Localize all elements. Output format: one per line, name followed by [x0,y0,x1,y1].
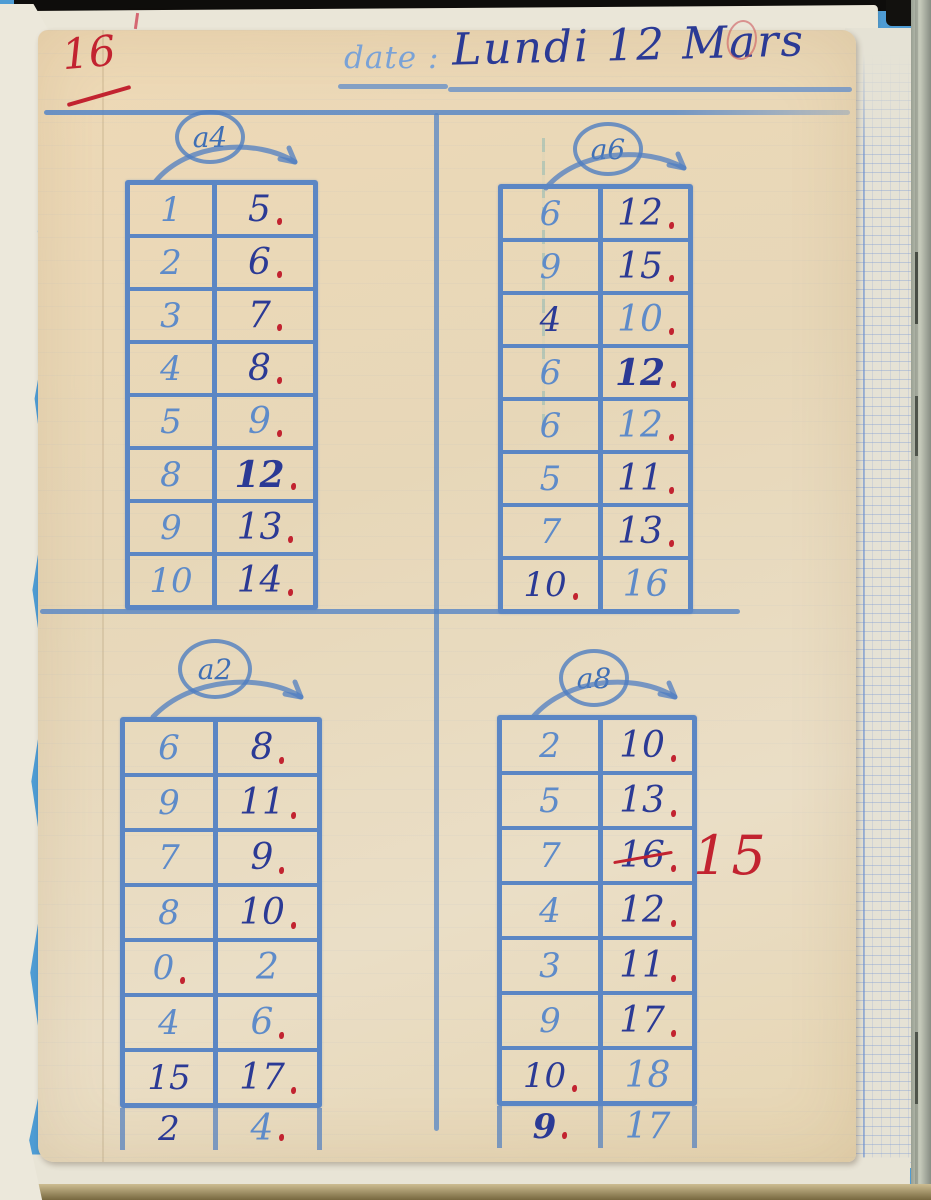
handwritten-number: 11 [619,948,665,984]
table-cell: 13 [217,503,313,552]
grading-dot [671,975,676,982]
table-row: 79 [125,828,317,883]
teacher-correction: 15 [693,824,770,887]
handwritten-number: 12 [234,457,284,493]
table-cell: 6 [218,997,317,1048]
handwritten-number: 6 [540,409,562,443]
table-cell: 6 [503,401,603,450]
handwritten-number: 11 [617,461,663,497]
table-cell: 5 [130,397,217,446]
handwritten-number: 5 [160,405,182,439]
grading-dot [277,218,282,225]
table-cell: 8 [218,722,317,773]
table-cell: 6 [503,348,603,397]
grading-dot [291,483,296,490]
table-cell: 8 [217,344,313,393]
table-cell: 7 [125,832,218,883]
table-row: 612 [503,344,688,397]
handwritten-number: 2 [160,246,182,280]
handwritten-number: 5 [540,462,562,496]
handwritten-number: 10 [617,302,663,338]
notebook-cover-edge [36,1184,931,1200]
grading-dot [671,755,676,762]
table-plus2: 689117981002461517 24 [120,717,322,1150]
handwritten-number: 10 [523,1059,566,1093]
table-cell: 10 [503,560,603,609]
handwritten-number: 17 [625,1109,671,1145]
table-cell: 4 [218,1108,317,1150]
handwritten-number: 7 [540,515,562,549]
table-cell: 2 [218,942,317,993]
table-cell: 12 [603,885,692,936]
table-row: 915 [503,238,688,291]
handwritten-number: 9 [251,840,274,876]
table-row: 911 [125,773,317,828]
table-cell: 4 [130,344,217,393]
table-row: 24 [120,1108,322,1150]
handwritten-number: 10 [523,568,566,602]
divider-vertical-center [434,113,439,1131]
handwritten-number: 17 [239,1060,285,1096]
handwritten-number: 16 [619,838,665,874]
table-cell: 12 [603,348,688,397]
table-row: 68 [125,722,317,773]
handwritten-number: 12 [617,196,663,232]
table-cell: 15 [125,1052,218,1103]
table-cell: 6 [503,189,603,238]
grading-dot [277,324,282,331]
table-row: 713 [503,503,688,556]
handwritten-number: 6 [540,356,562,390]
table-cell: 12 [603,401,688,450]
grading-dot [279,757,284,764]
handwritten-number: 12 [617,408,663,444]
handwritten-number: 7 [248,298,271,334]
handwritten-number: 4 [539,894,561,928]
table-row: 37 [130,287,313,340]
mapping-arrow-icon [525,671,690,721]
table-frame: 6129154106126125117131016 [498,184,693,614]
handwritten-number: 12 [619,893,665,929]
table-cell: 16 [603,830,692,881]
table-row: 812 [130,446,313,499]
grading-dot [277,271,282,278]
table-cell: 18 [603,1050,692,1101]
grading-dot [671,865,676,872]
table-cell: 9 [218,832,317,883]
table-row: 1517 [125,1048,317,1103]
handwritten-number: 5 [539,784,561,818]
table-cell: 17 [603,1106,692,1148]
grading-dot [671,381,676,388]
handwritten-number: 18 [625,1058,671,1094]
handwritten-number: 4 [160,352,182,386]
handwritten-number: 4 [251,1111,274,1147]
handwritten-number: 1 [160,193,182,227]
table-cell: 2 [502,720,603,771]
table-cell: 10 [218,887,317,938]
grading-dot [279,1032,284,1039]
handwritten-number: 12 [615,355,665,391]
table-frame: 2105137164123119171018 [497,715,697,1106]
table-row: 26 [130,234,313,287]
table-cell: 12 [603,189,688,238]
table-row: 716 [502,826,692,881]
table-row: 917 [502,991,692,1046]
grading-dot [669,222,674,229]
handwritten-number: 13 [619,783,665,819]
grading-dot [669,328,674,335]
table-cell: 8 [130,450,217,499]
table-cell: 2 [125,1108,218,1150]
table-row: 1018 [502,1046,692,1101]
table-cell: 17 [603,995,692,1046]
table-cell: 4 [503,295,603,344]
exercise-block-plus2: a2 689117981002461517 24 [120,717,322,1150]
handwritten-number: 9 [539,1004,561,1038]
table-cell: 5 [217,185,313,234]
handwritten-number: 3 [539,949,561,983]
handwritten-number: 5 [248,192,271,228]
handwritten-number: 3 [160,299,182,333]
table-row: 1016 [503,556,688,609]
table-plus6: 6129154106126125117131016 [498,184,693,614]
table-cell: 10 [603,720,692,771]
table-row: 810 [125,883,317,938]
table-plus4: 15263748598129131014 [125,180,318,610]
grading-dot [291,922,296,929]
exercise-block-plus4: a4 15263748598129131014 [125,180,318,610]
handwritten-number: 8 [251,730,274,766]
handwritten-number: 16 [623,567,669,603]
table-cell: 9 [502,1106,603,1148]
grading-dot [572,1085,577,1092]
handwritten-number: 8 [160,458,182,492]
table-row: 513 [502,771,692,826]
table-cell: 16 [603,560,688,609]
handwritten-number: 2 [158,1112,180,1146]
table-row: 1014 [130,552,313,605]
date-underline [448,87,852,92]
table-cell: 11 [603,940,692,991]
grading-dot [671,810,676,817]
grading-dot [288,589,293,596]
table-cell: 7 [217,291,313,340]
table-frame: 689117981002461517 [120,717,322,1108]
table-cell: 7 [503,507,603,556]
grading-dot [669,434,674,441]
handwritten-number: 9 [158,786,180,820]
handwritten-number: 17 [619,1003,665,1039]
grading-dot [279,1134,284,1141]
handwritten-number: 13 [617,514,663,550]
table-cell: 3 [502,940,603,991]
grading-dot [291,812,296,819]
table-cell: 11 [603,454,688,503]
grading-dot [291,1087,296,1094]
handwritten-number: 6 [248,245,271,281]
handwritten-number: 9 [533,1110,557,1144]
table-row: 917 [497,1106,697,1148]
table-row: 311 [502,936,692,991]
grading-dot [180,977,185,984]
handwritten-number: 6 [251,1005,274,1041]
table-cell: 9 [217,397,313,446]
table-row: 913 [130,499,313,552]
table-row: 412 [502,881,692,936]
table-cell: 11 [218,777,317,828]
table-row: 612 [503,397,688,450]
handwritten-number: 8 [248,351,271,387]
exercise-block-plus6: a6 6129154106126125117131016 [498,184,693,614]
handwritten-number: 14 [237,563,283,599]
page-number: 16 [60,26,118,79]
table-row: 511 [503,450,688,503]
mapping-arrow-icon [145,669,315,721]
handwritten-number: 2 [256,950,279,986]
grading-dot [573,593,578,600]
table-cell: 17 [218,1052,317,1103]
table-plus8: 2105137164123119171018 917 [497,715,697,1148]
table-cell: 6 [125,722,218,773]
table-cell: 8 [125,887,218,938]
table-row: 210 [502,720,692,771]
notebook-binding-edge [911,0,931,1200]
table-cell: 14 [217,556,313,605]
table-cell: 9 [125,777,218,828]
table-row: 02 [125,938,317,993]
handwritten-number: 15 [147,1061,190,1095]
grading-dot [279,867,284,874]
table-cell: 12 [217,450,313,499]
handwritten-number: 9 [540,250,562,284]
handwritten-number: 4 [540,303,562,337]
table-cell: 13 [603,775,692,826]
handwritten-number: 9 [248,404,271,440]
grading-dot [669,540,674,547]
table-cell: 3 [130,291,217,340]
grading-dot [277,377,282,384]
handwritten-number: 13 [237,510,283,546]
grading-dot [671,920,676,927]
grading-dot [669,487,674,494]
table-cell: 4 [502,885,603,936]
handwritten-number: 10 [619,728,665,764]
grading-dot [669,275,674,282]
table-cell: 10 [130,556,217,605]
table-cell: 9 [503,242,603,291]
table-row: 410 [503,291,688,344]
divider-horizontal-top [44,110,850,115]
table-cell: 9 [130,503,217,552]
table-cell: 10 [603,295,688,344]
scanned-notebook-page: 16 date : Lundi 12 Mars a4 1526374859812… [0,0,931,1200]
table-row: 15 [130,185,313,234]
handwritten-number: 2 [539,729,561,763]
mapping-arrow-icon [147,136,307,186]
table-cell: 6 [217,238,313,287]
table-cell: 5 [502,775,603,826]
handwritten-number: 8 [158,896,180,930]
table-cell: 15 [603,242,688,291]
table-cell: 13 [603,507,688,556]
table-row: 48 [130,340,313,393]
grading-dot [562,1132,567,1139]
table-cell: 5 [503,454,603,503]
table-frame: 15263748598129131014 [125,180,318,610]
handwritten-number: 9 [160,511,182,545]
handwritten-number: 4 [158,1006,180,1040]
table-cell: 0 [125,942,218,993]
table-cell: 9 [502,995,603,1046]
handwritten-number: 15 [617,249,663,285]
handwritten-number: 10 [239,895,285,931]
table-row: 59 [130,393,313,446]
table-row: 46 [125,993,317,1048]
handwritten-number: 7 [158,841,180,875]
handwritten-number: 0 [153,951,175,985]
date-label: date : [344,40,439,76]
handwritten-number: 11 [239,785,285,821]
exercise-block-plus8: a8 2105137164123119171018 917 [497,715,697,1148]
grading-dot [277,430,282,437]
handwritten-number: 7 [539,839,561,873]
grading-dot [671,1030,676,1037]
handwritten-number: 6 [540,197,562,231]
table-cell: 1 [130,185,217,234]
table-cell: 7 [502,830,603,881]
handwritten-number: 6 [158,731,180,765]
table-cell: 4 [125,997,218,1048]
handwritten-number: 10 [149,564,192,598]
date-label-underline [338,84,448,89]
table-cell: 2 [130,238,217,287]
table-row: 612 [503,189,688,238]
table-cell: 10 [502,1050,603,1101]
grading-dot [288,536,293,543]
